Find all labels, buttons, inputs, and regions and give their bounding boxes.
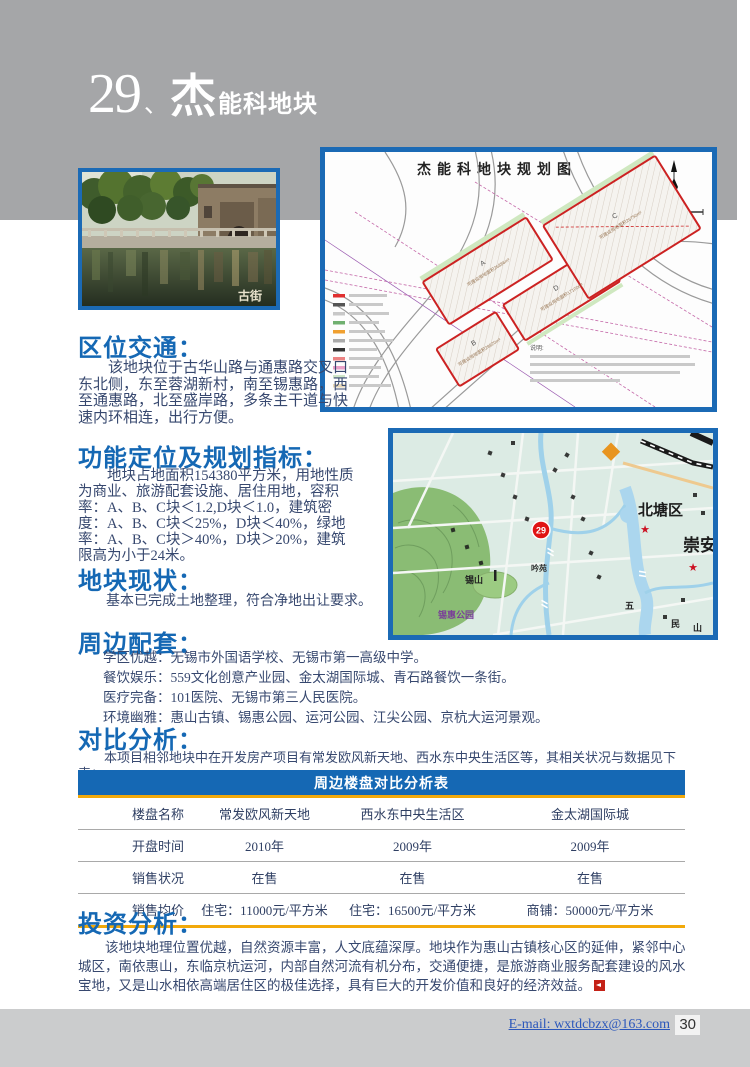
table-cell: 2009年 — [495, 829, 685, 861]
table-row-label: 销售状况 — [78, 861, 199, 893]
list-item: 学区优越：无锡市外国语学校、无锡市第一高级中学。 — [103, 648, 549, 668]
location-body: 该地块位于古华山路与通惠路交叉口东北侧，东至蓉湖新村，南至锡惠路，西至通惠路，北… — [78, 360, 356, 426]
district-label-beitang: 北塘区 — [638, 501, 683, 519]
map-notes: 说明: — [530, 344, 695, 382]
document-page: { "header": { "number": "29", "comma": "… — [0, 0, 750, 1067]
email-link[interactable]: E-mail: wxtdcbzx@163.com — [509, 1017, 670, 1033]
road-char-b: 民 — [671, 619, 680, 629]
star-icon: ★ — [640, 524, 650, 536]
parcels: A 可建设用地面积26886m² B 可建设用地面积28920m² C 可建设用… — [399, 152, 705, 388]
table-cell: 2010年 — [199, 829, 330, 861]
table-row-label: 开盘时间 — [78, 829, 199, 861]
section-heading-status: 地块现状： — [78, 561, 203, 596]
title-comma: 、 — [144, 84, 168, 119]
title-big-char: 杰 — [170, 60, 216, 126]
star-icon: ★ — [688, 562, 698, 574]
notes-label: 说明: — [530, 344, 544, 352]
status-body: 基本已完成土地整理，符合净地出让要求。 — [78, 593, 638, 611]
table-row-label: 楼盘名称 — [78, 798, 199, 829]
footer-band: E-mail: wxtdcbzx@163.com 30 — [0, 1009, 750, 1067]
comparison-table-title: 周边楼盘对比分析表 — [78, 770, 685, 798]
title-number: 29 — [88, 64, 140, 126]
table-cell: 住宅：16500元/平方米 — [330, 893, 495, 925]
plan-map-title: 杰能科地块规划图 — [417, 161, 577, 177]
page-number: 30 — [675, 1015, 700, 1035]
list-item: 餐饮娱乐：559文化创意产业园、金太湖国际城、青石路餐饮一条街。 — [103, 668, 549, 688]
table-cell: 常发欧风新天地 — [199, 798, 330, 829]
surroundings-list: 学区优越：无锡市外国语学校、无锡市第一高级中学。 餐饮娱乐：559文化创意产业园… — [103, 648, 549, 728]
site-marker-number: 29 — [536, 526, 546, 536]
stone-embankment — [82, 228, 276, 248]
planning-body: 地块占地面积154380平方米，用地性质为商业、旅游配套设施、居住用地，容积率：… — [78, 468, 358, 564]
plan-map-drawing: 杰能科地块规划图 — [325, 152, 712, 407]
photo-illustration: 古街 — [82, 172, 276, 306]
garden-label: 吟苑 — [531, 563, 547, 573]
table-cell: 在售 — [199, 861, 330, 893]
investment-body: 该地块地理位置优越，自然资源丰富，人文底蕴深厚。地块作为惠山古镇核心区的延伸，紧… — [78, 938, 694, 995]
list-item: 医疗完备：101医院、无锡市第三人民医院。 — [103, 688, 549, 708]
table-cell: 在售 — [330, 861, 495, 893]
section-heading-investment: 投资分析： — [78, 904, 203, 939]
section-heading-location: 区位交通： — [78, 328, 203, 363]
site-marker-29: 29 — [532, 521, 550, 539]
page-title: 29 、 杰 能科地块 — [88, 60, 318, 126]
table-cell: 西水东中央生活区 — [330, 798, 495, 829]
hill-label: 锡山 — [465, 574, 483, 585]
ancient-street-photo: 古街 — [78, 168, 280, 310]
table-cell: 金太湖国际城 — [495, 798, 685, 829]
table-cell: 在售 — [495, 861, 685, 893]
end-of-article-marker — [594, 980, 605, 991]
road-char-c: 山 — [693, 622, 702, 633]
district-label-chongan: 崇安 — [683, 535, 713, 555]
table-cell: 2009年 — [330, 829, 495, 861]
table-cell: 商铺：50000元/平方米 — [495, 893, 685, 925]
parcel-plan-map: 杰能科地块规划图 — [320, 147, 717, 412]
photo-caption: 古街 — [238, 288, 262, 303]
table-cell: 住宅：11000元/平方米 — [199, 893, 330, 925]
title-rest: 能科地块 — [218, 84, 318, 119]
